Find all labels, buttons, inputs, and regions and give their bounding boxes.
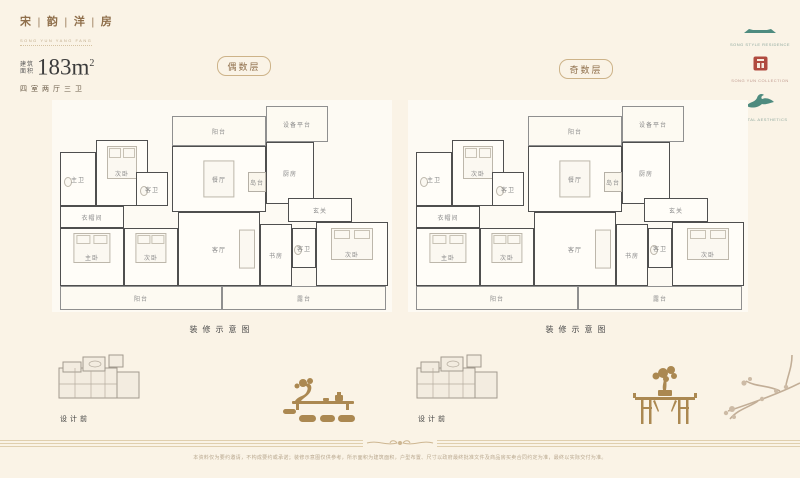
room-guest-bath-top: 客卫 bbox=[136, 172, 168, 206]
before-design-thumbnail-left bbox=[55, 352, 147, 410]
room-label: 玄关 bbox=[313, 206, 327, 215]
room-label: 设备平台 bbox=[639, 120, 667, 129]
room-equipment-platform: 设备平台 bbox=[266, 106, 328, 142]
area-number: 183m bbox=[37, 55, 89, 80]
odd-floor-badge: 奇数层 bbox=[559, 59, 613, 79]
room-label: 厨房 bbox=[639, 169, 653, 178]
page-title: 宋 | 韵 | 洋 | 房 bbox=[20, 13, 140, 29]
floorplan-even-floors: 设备平台阳台主卫次卧客卫餐厅岛台厨房衣帽间玄关主卧次卧客厅书房客卫次卧阳台露台 bbox=[52, 100, 392, 312]
room-label: 衣帽间 bbox=[81, 213, 102, 222]
room-living-room: 客厅 bbox=[178, 212, 260, 286]
sofa-icon bbox=[239, 230, 255, 269]
room-guest-bath-bottom: 客卫 bbox=[648, 228, 672, 268]
area-label: 建筑 面积 bbox=[20, 62, 34, 76]
legal-disclaimer: 本资料仅为要约邀请，不构成要约或承诺；装修示意图仅供参考，所示面积为建筑面积，户… bbox=[100, 454, 700, 461]
tea-table-icon bbox=[283, 375, 361, 423]
room-foyer: 玄关 bbox=[288, 198, 352, 222]
room-label: 客卫 bbox=[297, 244, 311, 253]
area-value: 183m2 bbox=[37, 53, 94, 79]
room-master-bath: 主卫 bbox=[60, 152, 96, 206]
room-label: 厨房 bbox=[283, 169, 297, 178]
room-label: 露台 bbox=[653, 294, 667, 303]
area-row: 建筑 面积 183m2 bbox=[20, 53, 140, 79]
room-label: 主卫 bbox=[427, 175, 441, 184]
room-label: 餐厅 bbox=[212, 175, 226, 184]
room-balcony-bottom: 阳台 bbox=[60, 286, 222, 310]
room-master-bedroom: 主卧 bbox=[416, 228, 480, 286]
room-kitchen: 厨房 bbox=[622, 142, 670, 204]
area-label-bottom: 面积 bbox=[20, 69, 34, 76]
room-label: 设备平台 bbox=[283, 120, 311, 129]
room-label: 阳台 bbox=[490, 294, 504, 303]
room-label: 岛台 bbox=[606, 178, 620, 187]
room-bedroom-mid: 次卧 bbox=[480, 228, 534, 286]
roof-logo-caption: SONG STYLE RESIDENCE bbox=[728, 42, 792, 47]
room-label: 次卧 bbox=[500, 253, 514, 262]
room-label: 餐厅 bbox=[568, 175, 582, 184]
room-study: 书房 bbox=[260, 224, 292, 286]
sofa-icon bbox=[595, 230, 611, 269]
room-label: 衣帽间 bbox=[437, 213, 458, 222]
room-label: 次卧 bbox=[701, 250, 715, 259]
room-guest-bath-bottom: 客卫 bbox=[292, 228, 316, 268]
roof-icon bbox=[743, 26, 777, 35]
room-cloakroom: 衣帽间 bbox=[416, 206, 480, 228]
footer-ornament-icon bbox=[363, 436, 437, 449]
mini-plan-sketch bbox=[413, 352, 505, 410]
room-label: 客卫 bbox=[501, 185, 515, 194]
room-label: 主卧 bbox=[441, 253, 455, 262]
mini-plan-sketch bbox=[55, 352, 147, 410]
room-label: 阳台 bbox=[134, 294, 148, 303]
room-label: 岛台 bbox=[250, 178, 264, 187]
plum-branch-illustration bbox=[688, 345, 800, 450]
room-living-room: 客厅 bbox=[534, 212, 616, 286]
room-bedroom-right: 次卧 bbox=[316, 222, 388, 286]
before-design-thumbnail-right bbox=[413, 352, 505, 410]
tea-table-illustration bbox=[283, 375, 361, 428]
seal-logo-caption: SONG YUN COLLECTION bbox=[728, 78, 792, 83]
room-label: 客厅 bbox=[568, 245, 582, 254]
brochure-page: 宋 | 韵 | 洋 | 房 SONG YUN YANG FANG 建筑 面积 1… bbox=[0, 0, 800, 478]
room-master-bath: 主卫 bbox=[416, 152, 452, 206]
room-bedroom-right: 次卧 bbox=[672, 222, 744, 286]
room-terrace: 露台 bbox=[578, 286, 742, 310]
room-terrace: 露台 bbox=[222, 286, 386, 310]
room-study: 书房 bbox=[616, 224, 648, 286]
room-label: 客厅 bbox=[212, 245, 226, 254]
roof-logo: SONG STYLE RESIDENCE bbox=[728, 22, 792, 47]
room-island-counter: 岛台 bbox=[604, 172, 622, 192]
room-master-bedroom: 主卧 bbox=[60, 228, 124, 286]
plan-caption-right: 装修示意图 bbox=[408, 324, 748, 335]
before-design-label-left: 设计前 bbox=[60, 414, 90, 424]
room-foyer: 玄关 bbox=[644, 198, 708, 222]
plum-branch-icon bbox=[688, 345, 800, 445]
plan-caption-left: 装修示意图 bbox=[52, 324, 392, 335]
room-equipment-platform: 设备平台 bbox=[622, 106, 684, 142]
room-label: 露台 bbox=[297, 294, 311, 303]
room-guest-bath-top: 客卫 bbox=[492, 172, 524, 206]
room-label: 阳台 bbox=[568, 127, 582, 136]
area-superscript: 2 bbox=[89, 58, 94, 69]
room-bedroom-mid: 次卧 bbox=[124, 228, 178, 286]
header: 宋 | 韵 | 洋 | 房 SONG YUN YANG FANG 建筑 面积 1… bbox=[20, 13, 140, 94]
room-label: 阳台 bbox=[212, 127, 226, 136]
room-label: 玄关 bbox=[669, 206, 683, 215]
room-label: 次卧 bbox=[345, 250, 359, 259]
room-balcony-top: 阳台 bbox=[172, 116, 266, 146]
seal-icon bbox=[753, 56, 768, 71]
room-island-counter: 岛台 bbox=[248, 172, 266, 192]
area-label-top: 建筑 bbox=[20, 62, 34, 69]
room-label: 次卧 bbox=[144, 253, 158, 262]
room-kitchen: 厨房 bbox=[266, 142, 314, 204]
room-balcony-bottom: 阳台 bbox=[416, 286, 578, 310]
room-label: 次卧 bbox=[471, 169, 485, 178]
room-label: 主卧 bbox=[85, 253, 99, 262]
room-label: 主卫 bbox=[71, 175, 85, 184]
even-floor-badge: 偶数层 bbox=[217, 56, 271, 76]
room-label: 书房 bbox=[269, 251, 283, 260]
room-label: 书房 bbox=[625, 251, 639, 260]
crane-icon bbox=[744, 92, 776, 110]
seal-logo: SONG YUN COLLECTION bbox=[728, 56, 792, 83]
floorplan-odd-floors: 设备平台阳台主卫次卧客卫餐厅岛台厨房衣帽间玄关主卧次卧客厅书房客卫次卧阳台露台 bbox=[408, 100, 748, 312]
room-label: 客卫 bbox=[145, 185, 159, 194]
before-design-label-right: 设计前 bbox=[418, 414, 448, 424]
room-label: 次卧 bbox=[115, 169, 129, 178]
room-spec: 四室两厅三卫 bbox=[20, 84, 140, 94]
room-label: 客卫 bbox=[653, 244, 667, 253]
page-subtitle: SONG YUN YANG FANG bbox=[20, 38, 92, 46]
room-cloakroom: 衣帽间 bbox=[60, 206, 124, 228]
room-balcony-top: 阳台 bbox=[528, 116, 622, 146]
